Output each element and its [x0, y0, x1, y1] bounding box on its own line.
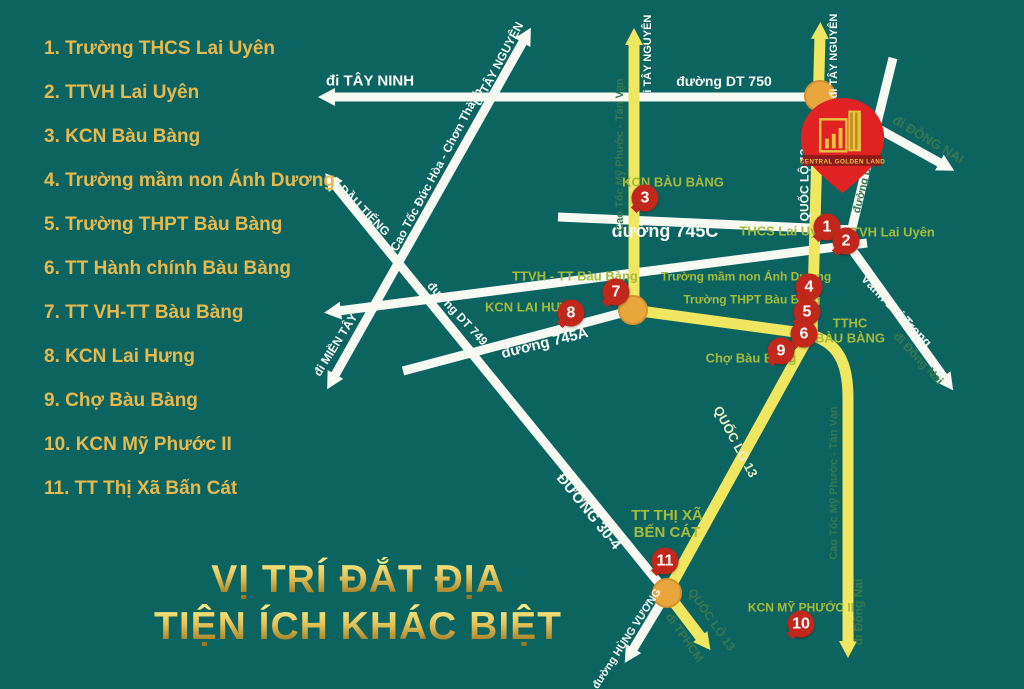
road-label-745c: đường 745C [612, 221, 719, 241]
road-yellow-link [633, 310, 810, 334]
map-title-line2: TIỆN ÍCH KHÁC BIỆT [118, 603, 598, 650]
place-label-tt-thi-xa-ben-cat: TT THỊ XÃ BẾN CÁT [631, 508, 703, 542]
brand-text: CENTRAL GOLDEN LAND [800, 158, 885, 165]
legend-item-7: 7. TT VH-TT Bàu Bàng [44, 302, 335, 324]
legend-item-2: 2. TTVH Lai Uyên [44, 82, 335, 104]
map-marker-7: 7 [603, 279, 630, 306]
legend: 1. Trường THCS Lai Uyên 2. TTVH Lai Uyên… [44, 38, 335, 500]
legend-item-1: 1. Trường THCS Lai Uyên [44, 38, 335, 60]
road-label-di-tay-nguyen-y2: đi TÂY NGUYÊN [828, 14, 840, 99]
map-marker-11: 11 [652, 548, 679, 575]
legend-item-6: 6. TT Hành chính Bàu Bàng [44, 258, 335, 280]
road-label-di-dong-nai-south: đi Đồng Nai [852, 579, 865, 646]
legend-item-5: 5. Trường THPT Bàu Bàng [44, 214, 335, 236]
place-label-tthc-bau-bang: TTHC BÀU BÀNG [815, 316, 885, 345]
road-label-dt750: đường DT 750 [676, 74, 772, 90]
map-marker-4: 4 [796, 274, 823, 301]
legend-item-11: 11. TT Thị Xã Bấn Cát [44, 478, 335, 500]
map-marker-2: 2 [833, 228, 860, 255]
project-location-pin: CENTRAL GOLDEN LAND [794, 96, 891, 195]
map-title-line1: VỊ TRÍ ĐẮT ĐỊA [118, 556, 598, 603]
legend-item-3: 3. KCN Bàu Bàng [44, 126, 335, 148]
legend-item-4: 4. Trường mầm non Ánh Dương [44, 170, 335, 192]
map-marker-9: 9 [768, 338, 795, 365]
map-marker-6: 6 [791, 321, 818, 348]
map-marker-3: 3 [632, 185, 659, 212]
location-map: đi TÂY NINH đường DT 750 đi TÂY NGUYÊN C… [0, 0, 1024, 689]
road-label-di-tay-ninh: đi TÂY NINH [326, 74, 414, 91]
map-marker-10: 10 [788, 611, 815, 638]
road-label-caotoc-mpv-south: Cao Tốc Mỹ Phước - Tân Vạn [828, 406, 840, 559]
legend-item-8: 8. KCN Lai Hưng [44, 346, 335, 368]
map-title: VỊ TRÍ ĐẮT ĐỊA TIỆN ÍCH KHÁC BIỆT [118, 556, 598, 650]
legend-item-9: 9. Chợ Bàu Bàng [44, 390, 335, 412]
map-marker-8: 8 [558, 300, 585, 327]
road-label-caotoc-mpv-north: Cao Tốc Mỹ Phước - Tân Vạn [614, 78, 626, 231]
road-label-di-tay-nguyen-y1: đi TÂY NGUYÊN [642, 15, 654, 100]
legend-item-10: 10. KCN Mỹ Phước II [44, 434, 335, 456]
